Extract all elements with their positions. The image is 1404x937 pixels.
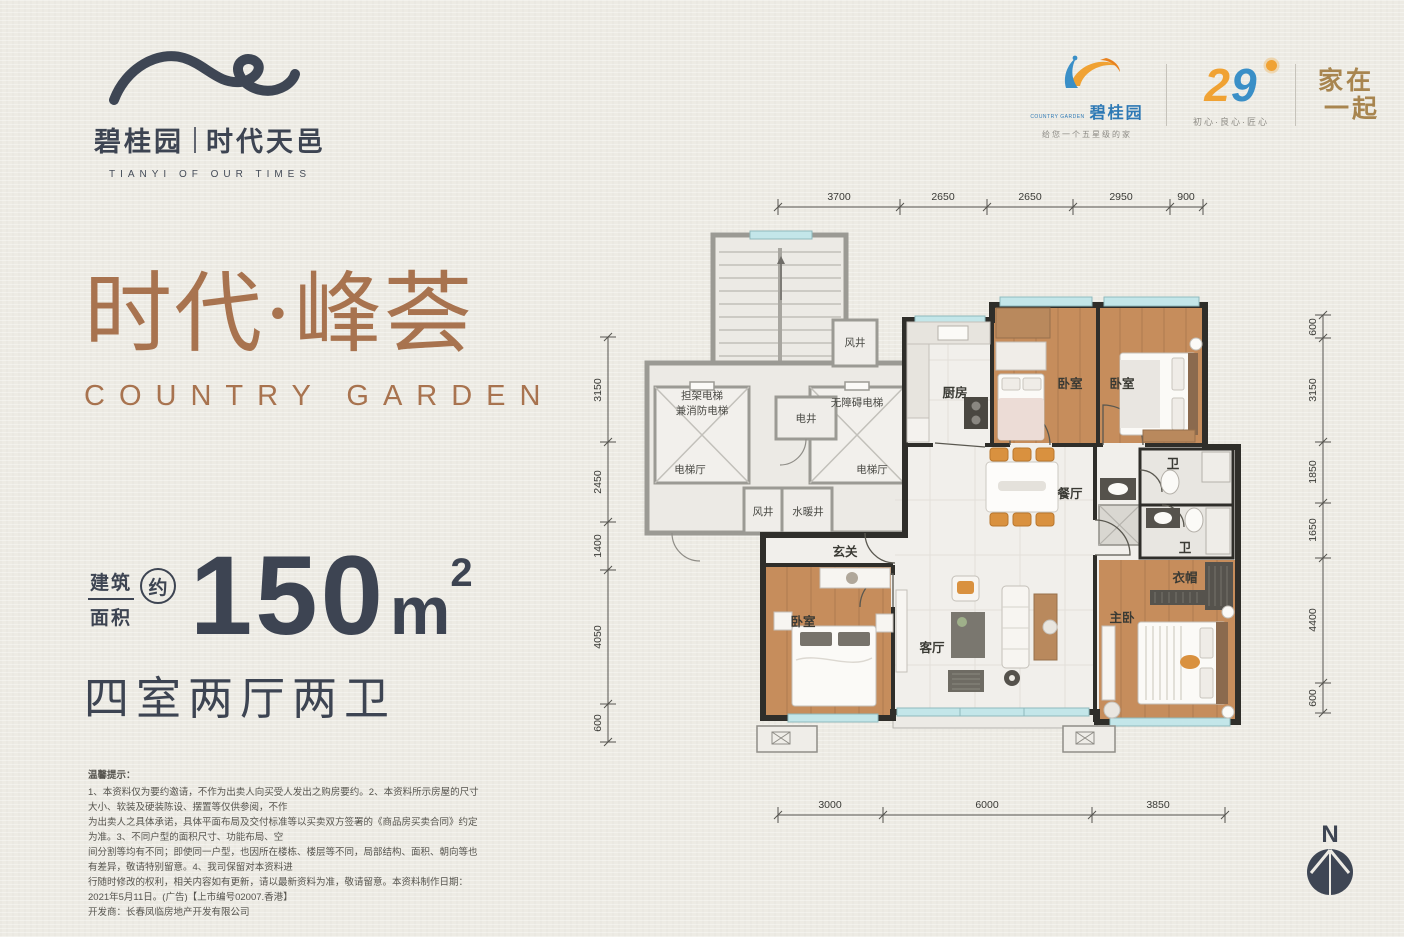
tv-console (896, 590, 907, 672)
layout-description: 四室两厅两卫 (84, 662, 396, 727)
label-bedroom-c: 卧室 (790, 614, 816, 629)
svg-text:600: 600 (592, 714, 604, 732)
svg-text:3700: 3700 (827, 191, 851, 203)
brand-name: 碧桂园 (94, 120, 184, 159)
svg-text:2650: 2650 (931, 191, 955, 203)
brand-project: 时代天邑 (206, 120, 326, 159)
label-electric-shaft: 电井 (796, 412, 817, 425)
disclaimer-line: 间分割等均有不同；即使同一户型，也因所在楼栋、楼层等不同，局部结构、面积、朝向等… (88, 845, 486, 875)
svg-text:4400: 4400 (1307, 608, 1319, 632)
hero-block: 时代·峰荟 COUNTRY GARDEN (84, 270, 554, 413)
area-exponent: 2 (450, 551, 472, 596)
anniversary-slogan: 初心·良心·匠心 (1193, 115, 1269, 128)
disclaimer-block: 温馨提示： 1、本资料仅为要约邀请，不作为出卖人向买受人发出之购房要约。2、本资… (88, 768, 486, 920)
brand-swoosh-icon (100, 36, 320, 114)
cg-name-label: 碧桂园 (1090, 99, 1144, 123)
family-line-1: 家在 (1312, 67, 1380, 95)
toilet-2 (1185, 508, 1203, 532)
sofa (1002, 586, 1029, 668)
dimension-bottom: 3000 6000 3850 (774, 799, 1229, 823)
dimension-top: 3700 2650 2650 2950 900 (774, 191, 1207, 215)
brand-block: 碧桂园 时代天邑 TIANYI OF OUR TIMES (78, 36, 342, 180)
svg-text:1400: 1400 (592, 534, 604, 558)
label-elevator-hall-left: 电梯厅 (674, 463, 706, 476)
area-prefix-bottom: 面积 (88, 600, 134, 630)
area-number: 150 m 2 (190, 548, 473, 650)
anniversary-digit-9: 9 (1231, 59, 1258, 111)
floorplan-svg: 3700 2650 2650 2950 900 3150 2450 1400 (570, 170, 1360, 900)
label-elevator-hall-right: 电梯厅 (856, 463, 888, 476)
label-wind-shaft-top: 风井 (845, 336, 866, 349)
corner-logos: COUNTRY GARDEN 碧桂园 给您一个五星级的家 29 初心·良心·匠心… (1024, 50, 1384, 140)
svg-text:600: 600 (1307, 689, 1319, 707)
project-subtitle: COUNTRY GARDEN (84, 380, 554, 413)
compass-icon: N (1307, 821, 1353, 895)
cloak-rack (1150, 590, 1208, 605)
label-master: 主卧 (1109, 610, 1135, 625)
svg-text:3150: 3150 (592, 378, 604, 402)
fridge (907, 418, 929, 442)
bedroom-a-bay-window (1000, 297, 1092, 306)
logo-divider (1166, 64, 1167, 126)
master-window (1110, 718, 1230, 726)
area-unit: m (390, 572, 450, 650)
country-garden-logo: COUNTRY GARDEN 碧桂园 给您一个五星级的家 (1024, 50, 1150, 140)
label-bath-2: 卫 (1179, 541, 1192, 555)
disclaimer-title: 温馨提示： (88, 768, 486, 783)
svg-text:4050: 4050 (592, 625, 604, 649)
svg-text:600: 600 (1307, 318, 1319, 336)
sun-icon (1266, 60, 1277, 71)
svg-text:2450: 2450 (592, 470, 604, 494)
label-living: 客厅 (918, 640, 945, 655)
disclaimer-line: 开发商：长春凤临房地产开发有限公司 (88, 905, 486, 920)
label-plumbing-shaft: 水暖井 (792, 505, 824, 518)
coffee-table (951, 612, 985, 658)
svg-text:3850: 3850 (1146, 799, 1170, 811)
cg-name-row: COUNTRY GARDEN 碧桂园 (1024, 99, 1150, 123)
brand-title-divider (194, 127, 196, 153)
dimension-right: 600 3150 1850 1650 4400 600 (1307, 311, 1331, 717)
disclaimer-line: 1、本资料仅为要约邀请，不作为出卖人向买受人发出之购房要约。2、本资料所示房屋的… (88, 785, 486, 815)
shower-1 (1202, 452, 1230, 482)
cg-sub-label: COUNTRY GARDEN (1030, 114, 1084, 123)
shower-2 (1206, 508, 1230, 554)
living-balcony-window (897, 708, 1089, 716)
cg-slogan: 给您一个五星级的家 (1024, 129, 1150, 140)
disclaimer-line: 行随时修改的权利，相关内容如有更新，请以最新资料为准，敬请留意。本资料制作日期：… (88, 875, 486, 905)
label-bedroom-b: 卧室 (1109, 376, 1135, 391)
brand-title: 碧桂园 时代天邑 (78, 120, 342, 159)
svg-text:2650: 2650 (1018, 191, 1042, 203)
bedroom-a-furniture (996, 308, 1050, 440)
compass-n-label: N (1321, 821, 1338, 848)
label-foyer: 玄关 (832, 544, 858, 559)
label-accessible-elevator: 无障碍电梯 (831, 396, 884, 409)
disclaimer-line: 为出卖人之具体承诺，具体平面布局及交付标准等以买卖双方签署的《商品房买卖合同》约… (88, 815, 486, 845)
stair-window (750, 231, 812, 239)
svg-text:3150: 3150 (1307, 378, 1319, 402)
area-value: 150 (190, 548, 386, 643)
anniversary-logo: 29 初心·良心·匠心 (1183, 62, 1279, 128)
svg-text:2950: 2950 (1109, 191, 1133, 203)
area-prefix: 建筑 面积 (88, 568, 134, 630)
anniversary-digit-2: 2 (1204, 59, 1231, 111)
bedroom-c-window (788, 714, 878, 722)
svg-text:1650: 1650 (1307, 518, 1319, 542)
svg-text:900: 900 (1177, 191, 1195, 203)
logo-divider-2 (1295, 64, 1296, 126)
family-line-2: 一起 (1312, 95, 1380, 123)
label-dining: 餐厅 (1056, 486, 1083, 501)
label-kitchen: 厨房 (942, 385, 967, 400)
bedroom-b-bay-window (1104, 297, 1199, 306)
label-bath-1: 卫 (1167, 457, 1180, 471)
dining-set (986, 448, 1058, 526)
svg-text:3000: 3000 (818, 799, 842, 811)
family-together-logo: 家在 一起 (1312, 67, 1384, 123)
label-stretcher-elevator-1: 担架电梯 (681, 389, 723, 402)
toilet-1 (1161, 470, 1179, 494)
label-stretcher-elevator-2: 兼消防电梯 (676, 404, 729, 417)
label-bedroom-a: 卧室 (1057, 376, 1083, 391)
area-block: 建筑 面积 约 150 m 2 (88, 548, 473, 650)
svg-text:1850: 1850 (1307, 460, 1319, 484)
brand-tagline: TIANYI OF OUR TIMES (78, 169, 342, 180)
dimension-left: 3150 2450 1400 4050 600 (592, 333, 616, 746)
svg-text:6000: 6000 (975, 799, 999, 811)
ac-platforms (757, 726, 1115, 752)
phoenix-logo-icon (1048, 50, 1126, 92)
area-prefix-top: 建筑 (88, 568, 134, 600)
anniversary-number: 29 (1193, 62, 1269, 108)
label-wind-shaft-bottom: 风井 (753, 505, 774, 518)
project-title: 时代·峰荟 (84, 270, 554, 358)
approx-circle: 约 (140, 568, 176, 604)
poster-canvas: 碧桂园 时代天邑 TIANYI OF OUR TIMES COUNTRY GAR… (0, 0, 1404, 937)
label-cloakroom: 衣帽 (1172, 570, 1197, 585)
